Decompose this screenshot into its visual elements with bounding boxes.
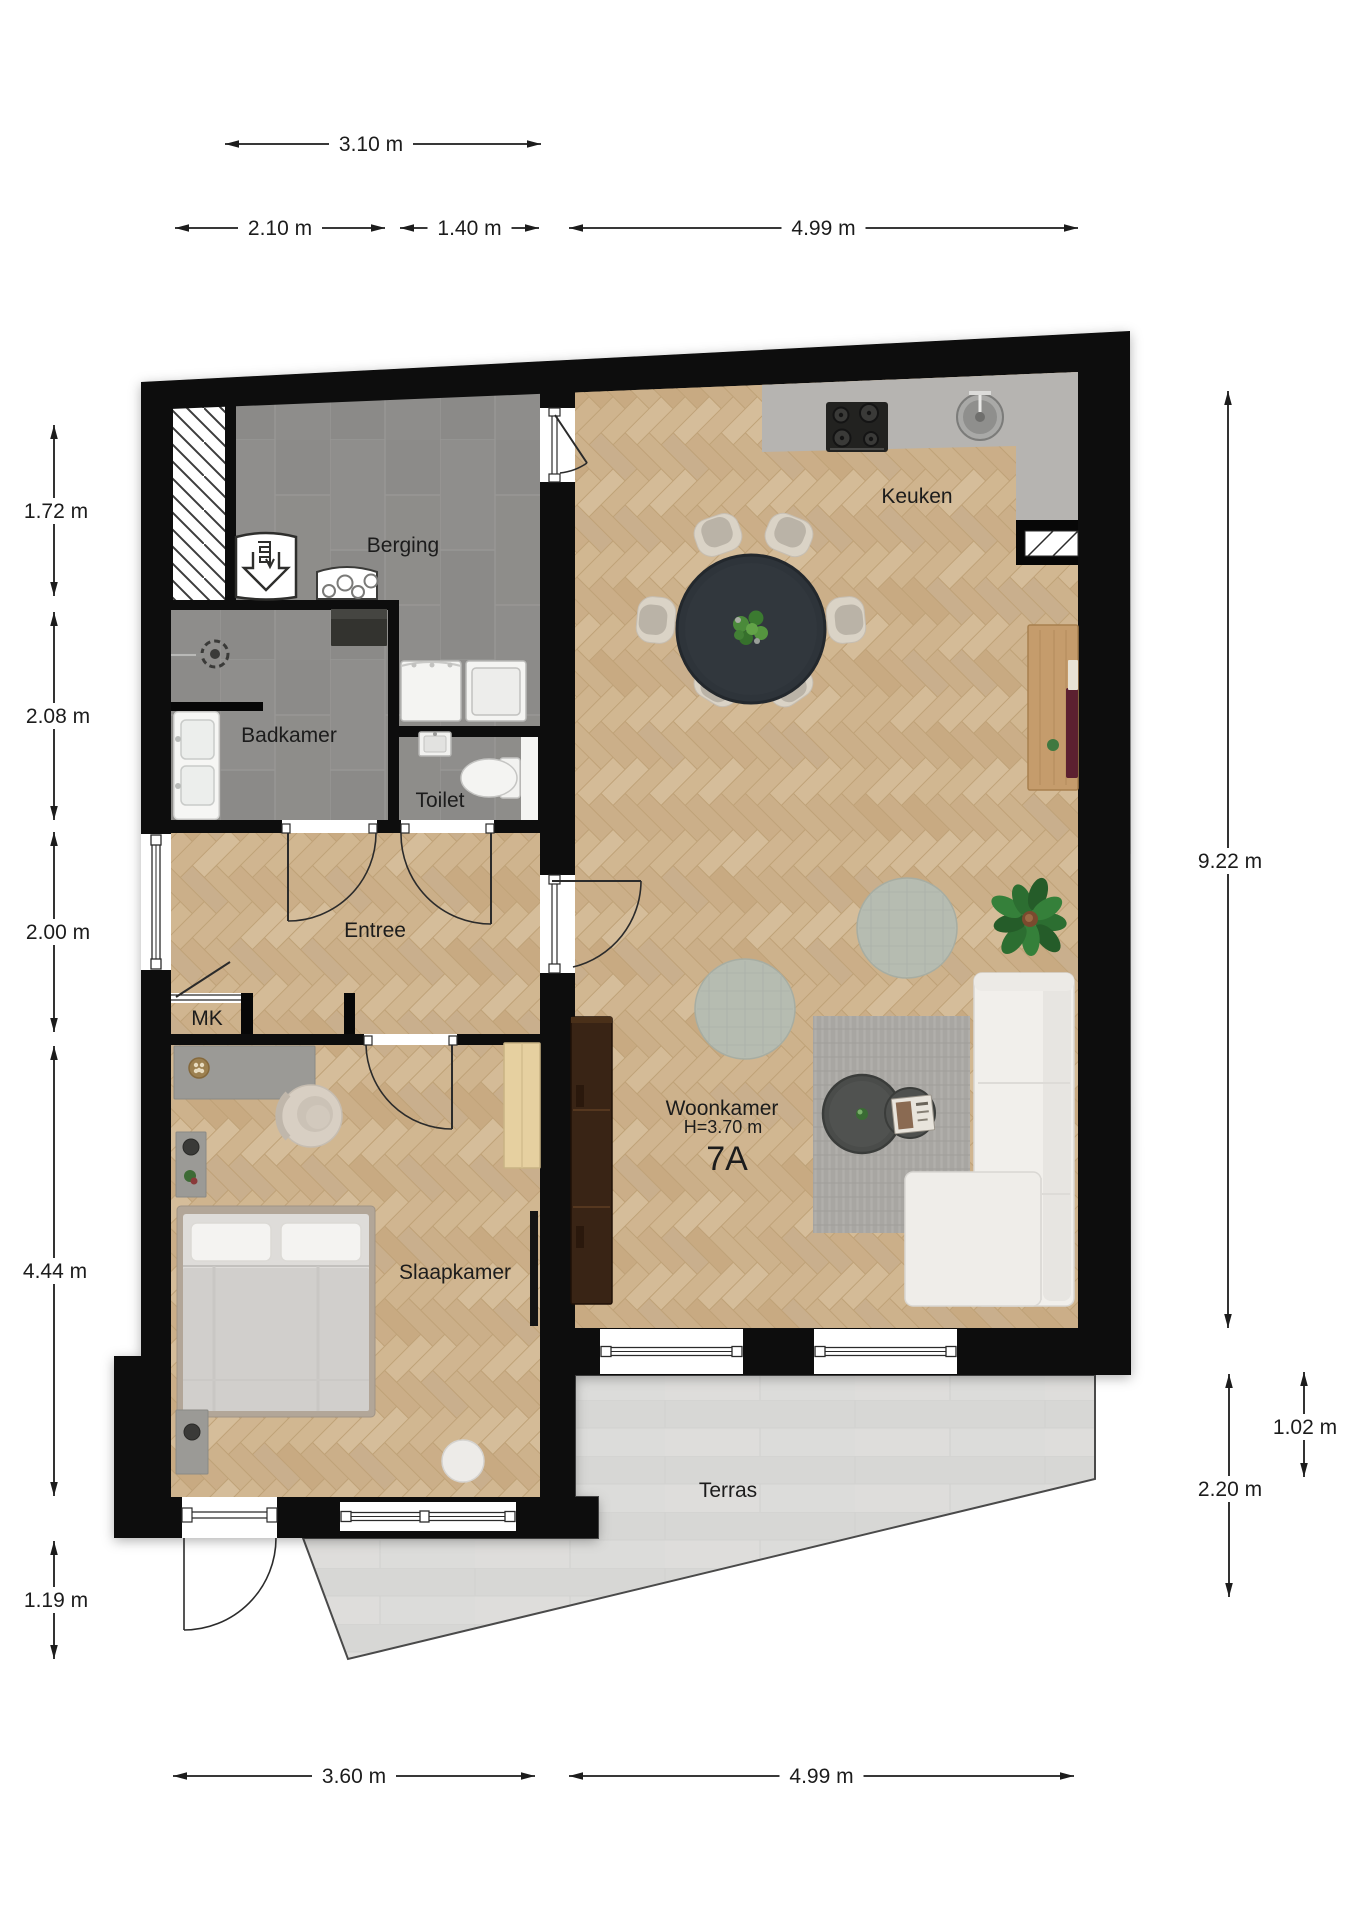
svg-text:Berging: Berging xyxy=(367,534,439,557)
svg-text:Badkamer: Badkamer xyxy=(241,724,337,747)
svg-text:3.10 m: 3.10 m xyxy=(339,133,403,156)
svg-text:2.00 m: 2.00 m xyxy=(26,921,90,944)
svg-text:Slaapkamer: Slaapkamer xyxy=(399,1261,511,1284)
svg-text:4.99 m: 4.99 m xyxy=(789,1765,853,1788)
svg-text:2.20 m: 2.20 m xyxy=(1198,1478,1262,1501)
svg-text:1.72 m: 1.72 m xyxy=(24,500,88,523)
svg-text:1.40 m: 1.40 m xyxy=(437,217,501,240)
svg-text:3.60 m: 3.60 m xyxy=(322,1765,386,1788)
svg-text:1.02 m: 1.02 m xyxy=(1273,1416,1337,1439)
svg-text:1.19 m: 1.19 m xyxy=(24,1589,88,1612)
svg-text:Toilet: Toilet xyxy=(415,789,464,812)
svg-text:2.08 m: 2.08 m xyxy=(26,705,90,728)
svg-text:Entree: Entree xyxy=(344,919,406,942)
svg-text:H=3.70 m: H=3.70 m xyxy=(684,1117,763,1137)
svg-text:Keuken: Keuken xyxy=(881,485,952,508)
svg-text:2.10 m: 2.10 m xyxy=(248,217,312,240)
svg-text:9.22 m: 9.22 m xyxy=(1198,850,1262,873)
svg-text:7A: 7A xyxy=(706,1140,748,1178)
svg-text:Terras: Terras xyxy=(699,1479,757,1502)
svg-text:MK: MK xyxy=(191,1007,223,1030)
svg-text:4.99 m: 4.99 m xyxy=(791,217,855,240)
svg-text:4.44 m: 4.44 m xyxy=(23,1260,87,1283)
